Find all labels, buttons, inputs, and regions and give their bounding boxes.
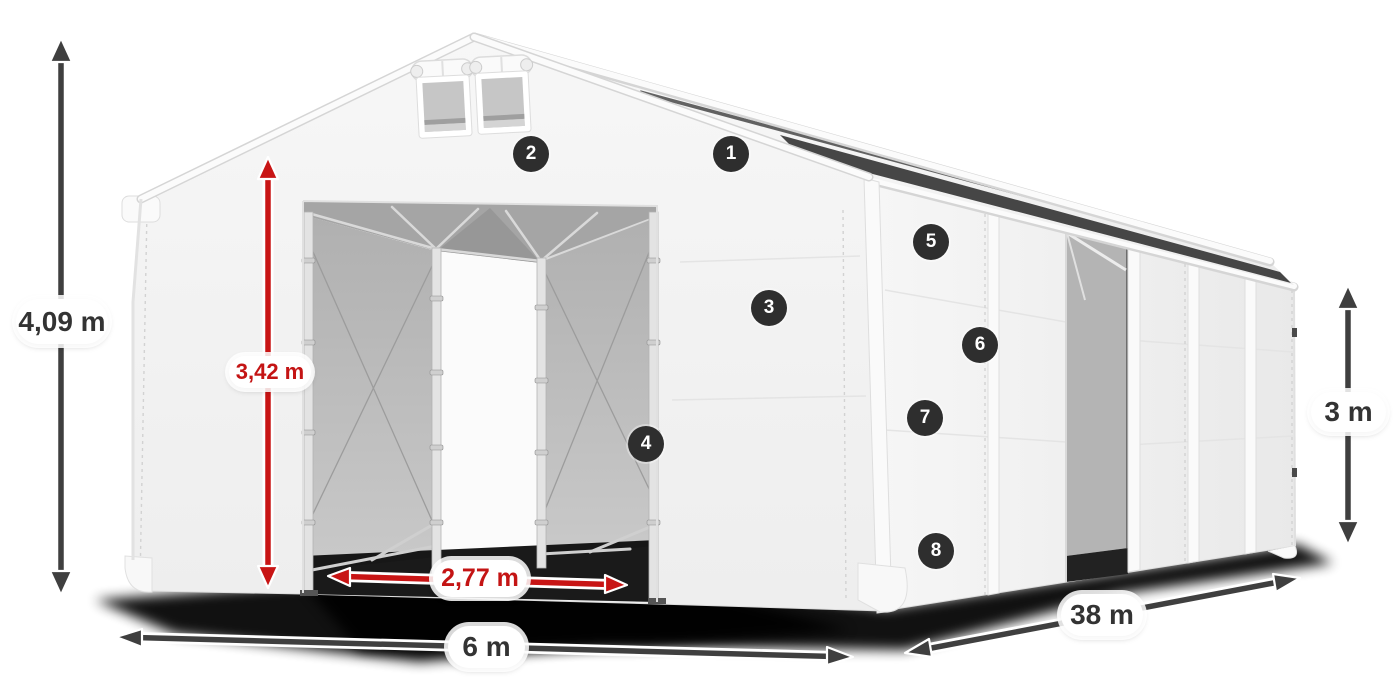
dimension-value: 38 m bbox=[1070, 599, 1134, 631]
callout-badge-7[interactable]: 7 bbox=[907, 400, 943, 436]
dimension-value: 3,42 m bbox=[236, 359, 305, 385]
dimension-value: 3 m bbox=[1324, 396, 1372, 428]
tent-illustration bbox=[0, 0, 1400, 700]
callout-badge-3[interactable]: 3 bbox=[751, 290, 787, 326]
dimension-label-side-wall-height: 3 m bbox=[1311, 392, 1386, 432]
dimension-label-entrance-height: 3,42 m bbox=[229, 356, 311, 388]
callout-number: 2 bbox=[526, 143, 537, 165]
callout-badge-5[interactable]: 5 bbox=[913, 224, 949, 260]
callout-badge-6[interactable]: 6 bbox=[962, 327, 998, 363]
callout-number: 7 bbox=[920, 407, 931, 429]
dimension-value: 2,77 m bbox=[441, 564, 519, 593]
dimension-value: 4,09 m bbox=[18, 306, 105, 338]
callout-badge-8[interactable]: 8 bbox=[918, 533, 954, 569]
callout-number: 3 bbox=[764, 297, 775, 319]
side-door-opening bbox=[1066, 228, 1128, 582]
callout-badge-2[interactable]: 2 bbox=[513, 136, 549, 172]
callout-number: 4 bbox=[641, 433, 652, 455]
dimension-label-total-height: 4,09 m bbox=[16, 299, 108, 344]
dimension-label-entrance-width: 2,77 m bbox=[433, 560, 527, 597]
dimension-label-length: 38 m bbox=[1061, 594, 1143, 636]
callout-badge-4[interactable]: 4 bbox=[628, 426, 664, 462]
callout-number: 1 bbox=[726, 143, 737, 165]
entrance-right-curtain bbox=[541, 218, 655, 557]
tent-dimension-diagram: 4,09 m 3,42 m 2,77 m 6 m 38 m 3 m 1 2 3 … bbox=[0, 0, 1400, 700]
dimension-value: 6 m bbox=[462, 631, 510, 663]
callout-number: 5 bbox=[926, 231, 937, 253]
entrance-interior bbox=[300, 201, 666, 604]
callout-number: 8 bbox=[931, 540, 942, 562]
callout-badge-1[interactable]: 1 bbox=[713, 136, 749, 172]
scaffold-post bbox=[304, 212, 313, 592]
callout-number: 6 bbox=[975, 334, 986, 356]
gable-window-left bbox=[410, 58, 477, 138]
gable-window-right bbox=[469, 54, 536, 134]
dimension-label-front-width: 6 m bbox=[448, 626, 525, 668]
